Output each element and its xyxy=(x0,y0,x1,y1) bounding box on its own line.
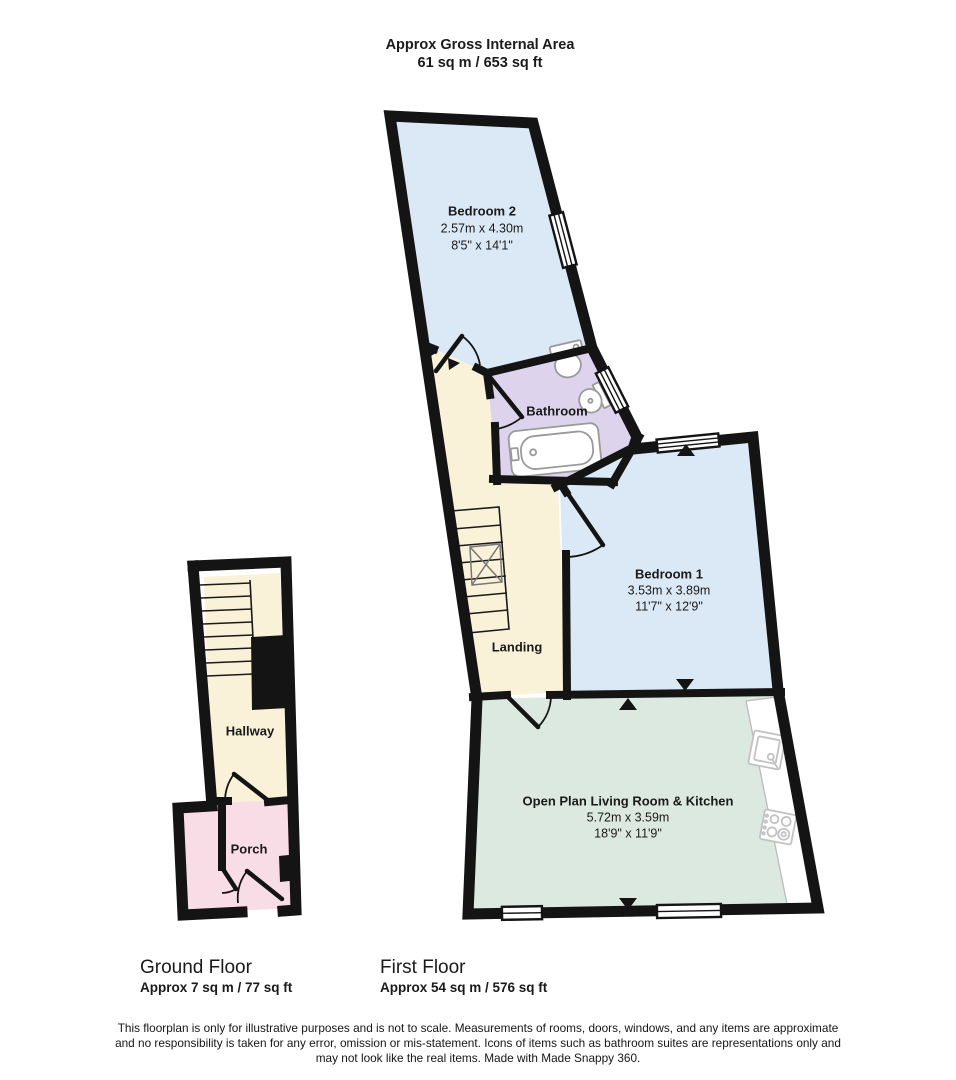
bathroom-label: Bathroom xyxy=(526,403,587,418)
floorplan-page: Approx Gross Internal Area 61 sq m / 653… xyxy=(0,0,956,1080)
landing-label: Landing xyxy=(492,639,543,654)
first-floor-plan: Bedroom 2 2.57m x 4.30m 8'5" x 14'1" Bat… xyxy=(390,116,818,920)
floorplan-canvas: Approx Gross Internal Area 61 sq m / 653… xyxy=(0,0,956,1080)
bedroom-1-label: Bedroom 1 3.53m x 3.89m 11'7" x 12'9" xyxy=(628,566,711,613)
floor-area: Approx 7 sq m / 77 sq ft xyxy=(140,980,293,995)
page-title: Approx Gross Internal Area xyxy=(386,37,576,53)
hob-icon xyxy=(759,809,796,845)
window-icon xyxy=(657,904,721,918)
room-name: Bedroom 2 xyxy=(448,203,516,218)
room-dim-metric: 2.57m x 4.30m xyxy=(441,221,524,235)
floor-name: First Floor xyxy=(380,957,466,978)
room-bedroom-1 xyxy=(560,437,778,692)
header: Approx Gross Internal Area 61 sq m / 653… xyxy=(386,37,576,71)
bedroom-2-label: Bedroom 2 2.57m x 4.30m 8'5" x 14'1" xyxy=(441,203,524,252)
room-name: Bedroom 1 xyxy=(635,566,703,581)
room-dim-imperial: 11'7" x 12'9" xyxy=(635,599,703,613)
porch-label: Porch xyxy=(231,841,268,856)
disclaimer-line: This floorplan is only for illustrative … xyxy=(118,1021,839,1035)
room-dim-imperial: 18'9" x 11'9" xyxy=(594,826,662,840)
room-dim-metric: 5.72m x 3.59m xyxy=(587,810,670,824)
kitchen-sink-icon xyxy=(748,730,786,769)
hallway-label: Hallway xyxy=(226,723,275,738)
room-dim-imperial: 8'5" x 14'1" xyxy=(451,238,513,252)
floor-area: Approx 54 sq m / 576 sq ft xyxy=(380,980,548,995)
room-name: Open Plan Living Room & Kitchen xyxy=(523,793,734,808)
disclaimer-line: may not look like the real items. Made w… xyxy=(316,1051,641,1065)
ground-floor-caption: Ground Floor Approx 7 sq m / 77 sq ft xyxy=(140,957,293,995)
gross-area-label: 61 sq m / 653 sq ft xyxy=(418,55,543,71)
window-icon xyxy=(502,906,542,920)
disclaimer-line: and no responsibility is taken for any e… xyxy=(115,1036,841,1050)
ground-floor-plan: Hallway Porch xyxy=(178,562,298,915)
floor-name: Ground Floor xyxy=(140,957,253,978)
disclaimer: This floorplan is only for illustrative … xyxy=(115,1021,841,1065)
first-floor-caption: First Floor Approx 54 sq m / 576 sq ft xyxy=(380,957,548,995)
room-dim-metric: 3.53m x 3.89m xyxy=(628,583,711,597)
wall-patch xyxy=(251,635,288,710)
